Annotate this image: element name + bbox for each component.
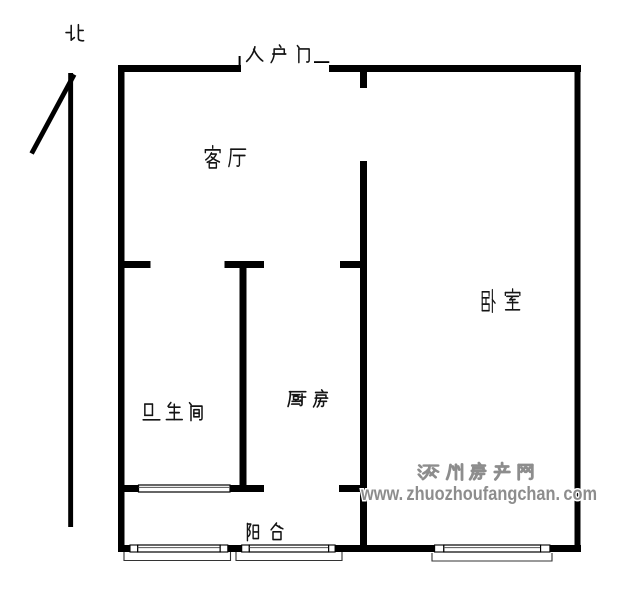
svg-text:www. zhuozhoufangchan. com: www. zhuozhoufangchan. com (360, 484, 597, 505)
